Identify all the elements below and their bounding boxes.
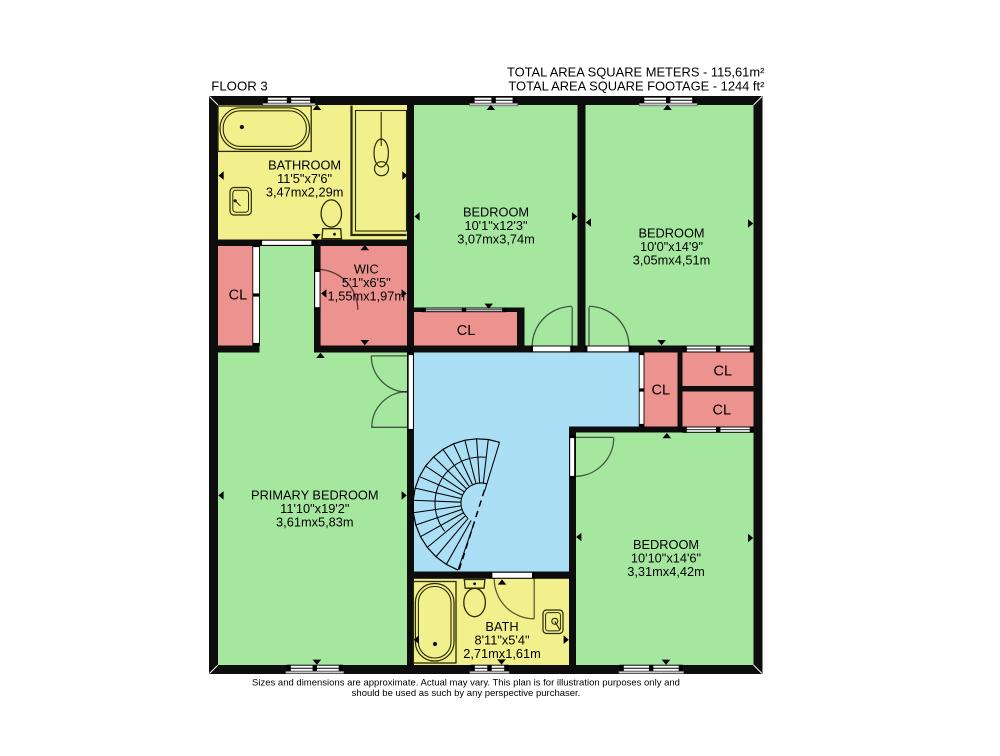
svg-text:1,55mx1,97m: 1,55mx1,97m <box>328 289 406 304</box>
svg-text:CL: CL <box>714 363 733 379</box>
svg-text:3,05mx4,51m: 3,05mx4,51m <box>633 253 711 268</box>
svg-text:TOTAL AREA SQUARE METERS - 115: TOTAL AREA SQUARE METERS - 115,61m² <box>507 64 765 79</box>
svg-text:Sizes and dimensions are appro: Sizes and dimensions are approximate. Ac… <box>252 678 680 689</box>
svg-text:CL: CL <box>229 288 248 304</box>
svg-text:3,07mx3,74m: 3,07mx3,74m <box>457 232 535 247</box>
svg-text:2,71mx1,61m: 2,71mx1,61m <box>463 646 541 661</box>
svg-text:3,31mx4,42m: 3,31mx4,42m <box>627 564 705 579</box>
svg-text:CL: CL <box>457 323 476 339</box>
svg-text:CL: CL <box>652 383 671 399</box>
svg-text:should be used as such by any: should be used as such by any perspectiv… <box>352 688 581 699</box>
svg-text:3,61mx5,83m: 3,61mx5,83m <box>276 515 354 530</box>
svg-text:FLOOR 3: FLOOR 3 <box>211 79 267 94</box>
svg-text:3,47mx2,29m: 3,47mx2,29m <box>266 185 344 200</box>
svg-text:CL: CL <box>713 402 732 418</box>
svg-text:TOTAL AREA SQUARE FOOTAGE - 12: TOTAL AREA SQUARE FOOTAGE - 1244 ft² <box>508 78 765 93</box>
